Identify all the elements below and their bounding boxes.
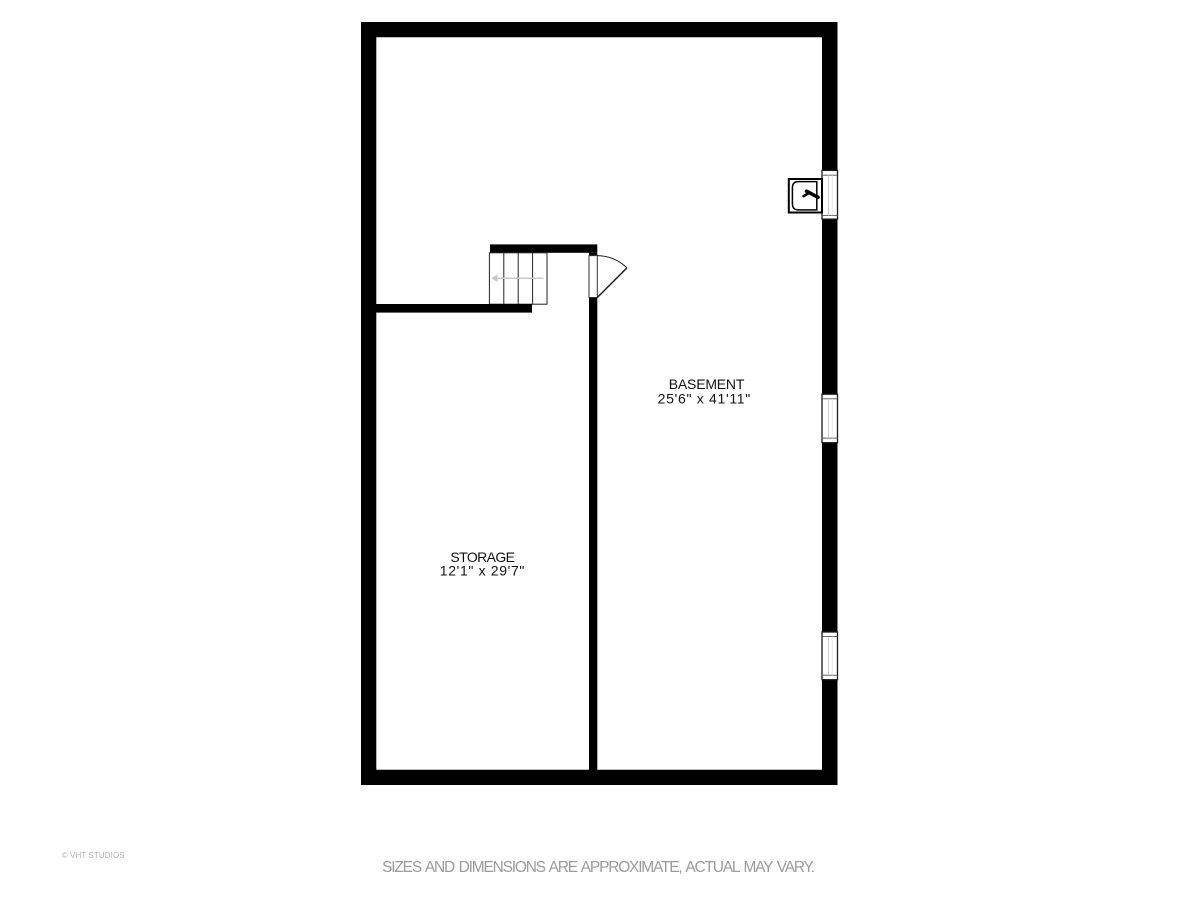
svg-text:12'1" x 29'7": 12'1" x 29'7" — [440, 562, 525, 578]
svg-text:25'6" x 41'11": 25'6" x 41'11" — [658, 391, 751, 407]
svg-text:SIZES AND DIMENSIONS ARE APPRO: SIZES AND DIMENSIONS ARE APPROXIMATE, AC… — [382, 859, 814, 876]
svg-text:© VHT STUDIOS: © VHT STUDIOS — [62, 851, 125, 860]
